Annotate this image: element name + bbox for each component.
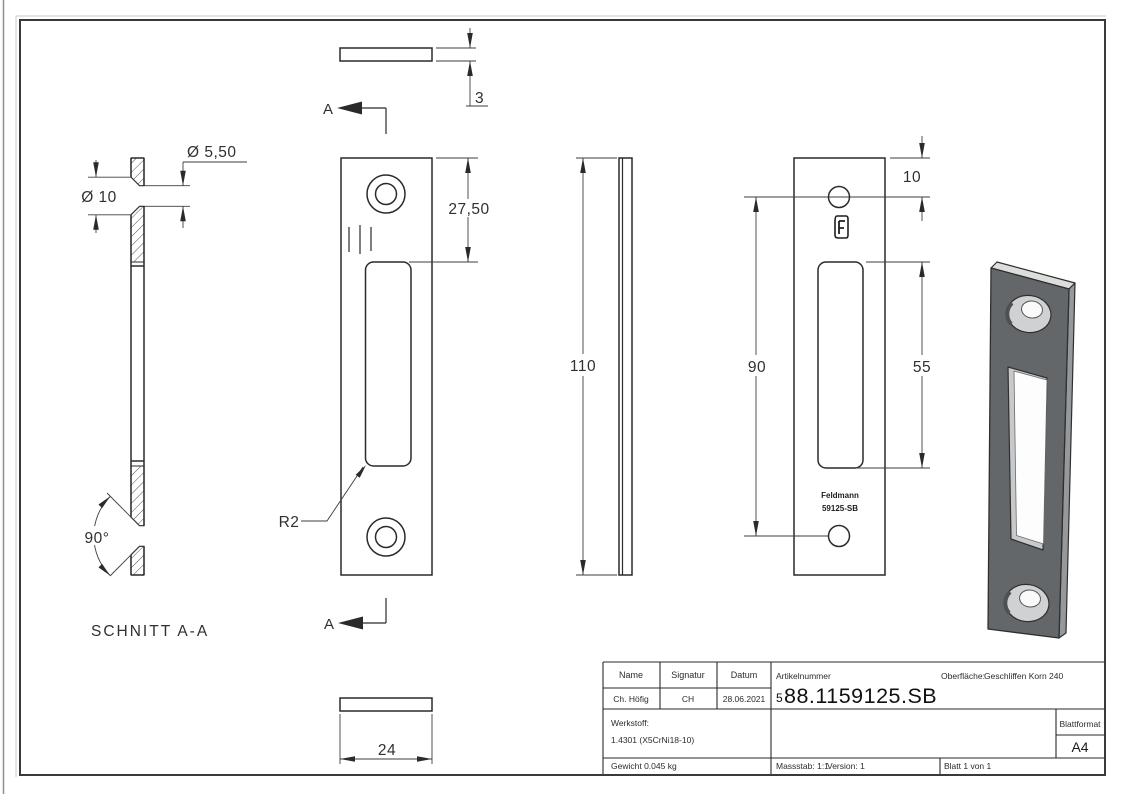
tb-material-value: 1.4301 (X5CrNi18-10) (611, 735, 694, 745)
dim-thickness: 3 (436, 28, 488, 107)
dim-slot-radius-label: R2 (279, 514, 300, 531)
side-view: 110 (565, 158, 632, 575)
section-view: Ø 5,50 Ø 10 90° SCHNITT A-A (80, 144, 247, 640)
front-slot (366, 262, 412, 466)
back-slot (818, 262, 863, 468)
top-view-outline (340, 48, 432, 61)
section-hatch-upper-mid (131, 206, 144, 262)
front-view: 27,50 R2 A (279, 158, 491, 633)
tb-value-date: 28.06.2021 (723, 694, 766, 704)
dim-slot-radius: R2 (279, 465, 366, 531)
back-view: Feldmann 59125-SB 10 90 (740, 136, 939, 575)
section-hatch-lower-mid (131, 466, 144, 526)
tb-header-date: Datum (731, 670, 758, 680)
dim-back-slot-height: 55 (856, 262, 939, 468)
back-bottom-hole (829, 526, 850, 547)
section-mark-top: A (323, 101, 386, 134)
drawing-sheet: Ø 5,50 Ø 10 90° SCHNITT A-A (0, 0, 1123, 794)
drawing-canvas: Ø 5,50 Ø 10 90° SCHNITT A-A (0, 0, 1123, 794)
iso-view (988, 262, 1075, 638)
dim-width-label: 24 (378, 742, 396, 759)
front-view-outline (341, 158, 432, 575)
dim-back-hole-spacing: 90 (740, 197, 773, 536)
tb-scale: Massstab: 1:1 (776, 761, 829, 771)
tb-weight: Gewicht 0.045 kg (611, 761, 677, 771)
tb-article-number: 88.1159125.SB (784, 684, 937, 708)
dim-back-hole-top: 10 (890, 136, 930, 221)
tb-header-name: Name (619, 670, 643, 680)
front-bottom-hole-countersink (367, 518, 405, 556)
iso-slot-opening (1014, 371, 1047, 544)
section-hatch-bottom (131, 546, 144, 575)
dim-hole-offset-top: 27,50 (409, 158, 491, 262)
dim-hole-dia-label: Ø 10 (81, 189, 117, 206)
tb-surface-label: Oberfläche: (941, 671, 985, 681)
engraving-brand: Feldmann (821, 491, 859, 500)
front-top-hole-countersink (367, 175, 405, 213)
section-mark-bottom-label: A (324, 616, 334, 633)
front-top-hole-bore (376, 184, 397, 205)
top-view: 3 A (323, 28, 488, 134)
tb-value-name: Ch. Höfig (613, 694, 649, 704)
feldmann-logo-icon (835, 216, 848, 238)
dim-back-hole-top-label: 10 (903, 169, 921, 186)
title-block: Name Signatur Datum Ch. Höfig CH 28.06.2… (603, 662, 1105, 774)
dim-back-slot-height-label: 55 (913, 359, 931, 376)
section-arrow-bottom-icon (338, 617, 363, 630)
tb-header-signature: Signatur (671, 670, 705, 680)
section-mark-top-label: A (323, 101, 333, 118)
bottom-view: 24 (340, 698, 432, 764)
tb-format-value: A4 (1071, 739, 1088, 755)
engraving-code: 59125-SB (822, 504, 858, 513)
tb-article-prefix: 5 (776, 691, 783, 705)
front-bottom-hole-bore (376, 527, 397, 548)
side-view-outline (619, 158, 632, 575)
dim-countersink-angle-label: 90° (85, 530, 110, 547)
tb-version: Version: 1 (827, 761, 865, 771)
tb-format-label: Blattformat (1059, 719, 1101, 729)
section-arrow-top-icon (337, 102, 362, 115)
tb-article-label: Artikelnummer (776, 671, 831, 681)
dim-back-hole-spacing-label: 90 (748, 359, 766, 376)
dim-height: 110 (565, 158, 617, 575)
tb-surface-value: Geschliffen Korn 240 (984, 671, 1063, 681)
dim-thickness-label: 3 (475, 90, 484, 107)
tb-sheet: Blatt 1 von 1 (944, 761, 992, 771)
section-hatch-top (131, 158, 144, 186)
section-mark-bottom: A (324, 598, 386, 633)
dim-countersink-dia-label: Ø 5,50 (187, 144, 237, 161)
section-view-label: SCHNITT A-A (91, 623, 209, 640)
dim-hole-dia: Ø 10 (81, 160, 131, 233)
bottom-view-outline (340, 698, 432, 711)
grinding-marks (349, 225, 371, 254)
dim-width: 24 (340, 714, 432, 764)
tb-value-signature: CH (682, 694, 694, 704)
dim-hole-offset-top-label: 27,50 (448, 201, 489, 218)
dim-countersink-dia: Ø 5,50 (144, 144, 247, 228)
dim-height-label: 110 (570, 358, 596, 375)
tb-material-label: Werkstoff: (611, 718, 649, 728)
